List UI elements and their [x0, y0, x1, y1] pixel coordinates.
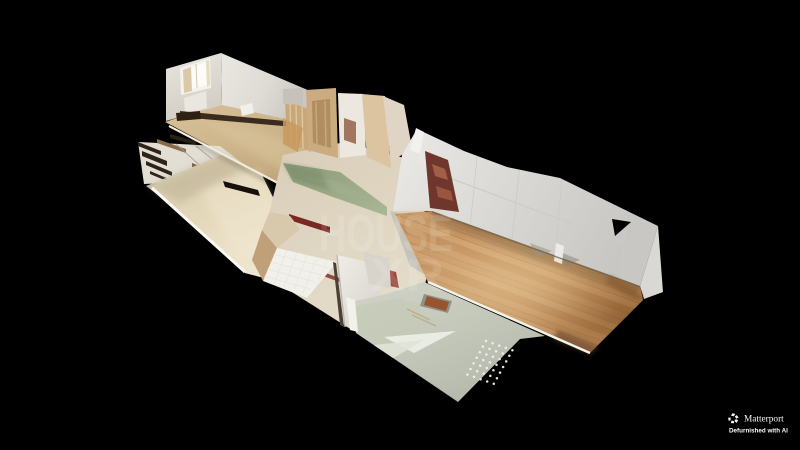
- svg-text:Defurnished with AI: Defurnished with AI: [729, 428, 788, 435]
- svg-text:XR: XR: [370, 249, 444, 301]
- svg-text:Matterport: Matterport: [744, 415, 784, 425]
